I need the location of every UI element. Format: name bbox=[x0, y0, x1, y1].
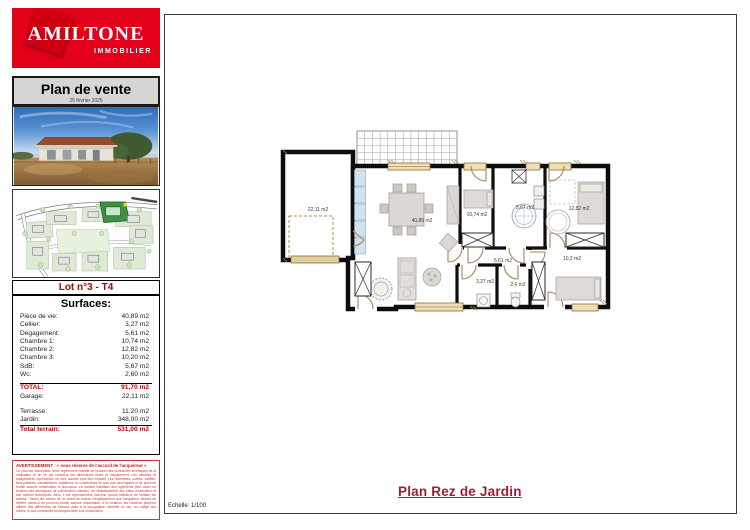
table-row: Jardin:348,00 m2 bbox=[13, 416, 159, 424]
room-label-garage: 22,11 m2 bbox=[308, 207, 329, 213]
document-title: Plan de vente bbox=[14, 81, 158, 97]
house-photo-image bbox=[13, 107, 159, 185]
table-row: Chambre 2:12,82 m2 bbox=[13, 346, 159, 354]
plan-de-vente-page: AMILTONE IMMOBILIER Plan de vente 25 fév… bbox=[0, 0, 750, 530]
scale-label: Echelle: 1/100 bbox=[168, 503, 206, 509]
document-date: 25 février 2025 bbox=[14, 98, 158, 104]
agency-logo: AMILTONE IMMOBILIER bbox=[12, 8, 160, 68]
warning-body: Ce plan est susceptible d'être légèremen… bbox=[16, 469, 156, 513]
pergola-grid bbox=[357, 131, 457, 167]
table-row: Degagement:5,61 m2 bbox=[13, 330, 159, 338]
table-row: Chambre 1:10,74 m2 bbox=[13, 338, 159, 346]
table-row: Chambre 3:10,20 m2 bbox=[13, 354, 159, 362]
warning-notice: AVERTISSEMENT : « sous réserve de l'acco… bbox=[12, 460, 160, 520]
surfaces-title: Surfaces: bbox=[13, 298, 159, 310]
plan-title: Plan Rez de Jardin bbox=[398, 484, 522, 499]
table-row-spacer bbox=[13, 401, 159, 408]
house-photo bbox=[12, 106, 160, 186]
room-label-bedroom3: 10,2 m2 bbox=[563, 256, 581, 262]
table-row-total: TOTAL:91,70 m2 bbox=[13, 384, 159, 392]
room-label-cellar: 3,27 m2 bbox=[476, 279, 494, 285]
floor-plan: 22,11 m2 40,89 m2 10,74 m2 5,67 m2 12,82… bbox=[164, 14, 737, 514]
table-row-total-terrain: Total terrain:531,00 m2 bbox=[13, 426, 159, 434]
room-label-bedroom1: 10,74 m2 bbox=[467, 212, 488, 218]
lot-label: Lot n°3 - T4 bbox=[13, 281, 159, 294]
table-row: Wc:2,60 m2 bbox=[13, 371, 159, 379]
site-plan-image bbox=[13, 190, 159, 277]
table-row: Cellier:3,27 m2 bbox=[13, 321, 159, 329]
logo-brand-text: AMILTONE bbox=[12, 23, 160, 46]
room-label-living: 40,89 m2 bbox=[412, 218, 433, 224]
table-row: SdB:5,67 m2 bbox=[13, 363, 159, 371]
table-row: Terrasse:11,20 m2 bbox=[13, 408, 159, 416]
room-label-hallway: 5,61 m2 bbox=[494, 258, 512, 264]
room-label-wc: 2,6 m2 bbox=[510, 282, 526, 288]
room-label-bedroom2: 12,82 m2 bbox=[569, 206, 590, 212]
logo-tagline-text: IMMOBILIER bbox=[94, 48, 152, 55]
document-header: Plan de vente 25 février 2025 bbox=[12, 76, 160, 106]
glazed-bay bbox=[355, 170, 366, 254]
warning-title: AVERTISSEMENT : « sous réserve de l'acco… bbox=[16, 463, 156, 468]
room-label-bathroom: 5,67 m2 bbox=[516, 205, 534, 211]
site-plan bbox=[12, 189, 160, 278]
lot-label-strip: Lot n°3 - T4 bbox=[12, 280, 160, 295]
table-row: Pièce de vie:40,89 m2 bbox=[13, 313, 159, 321]
surfaces-table: Surfaces: Pièce de vie:40,89 m2 Cellier:… bbox=[12, 295, 160, 455]
table-row: Garage:22,11 m2 bbox=[13, 393, 159, 401]
